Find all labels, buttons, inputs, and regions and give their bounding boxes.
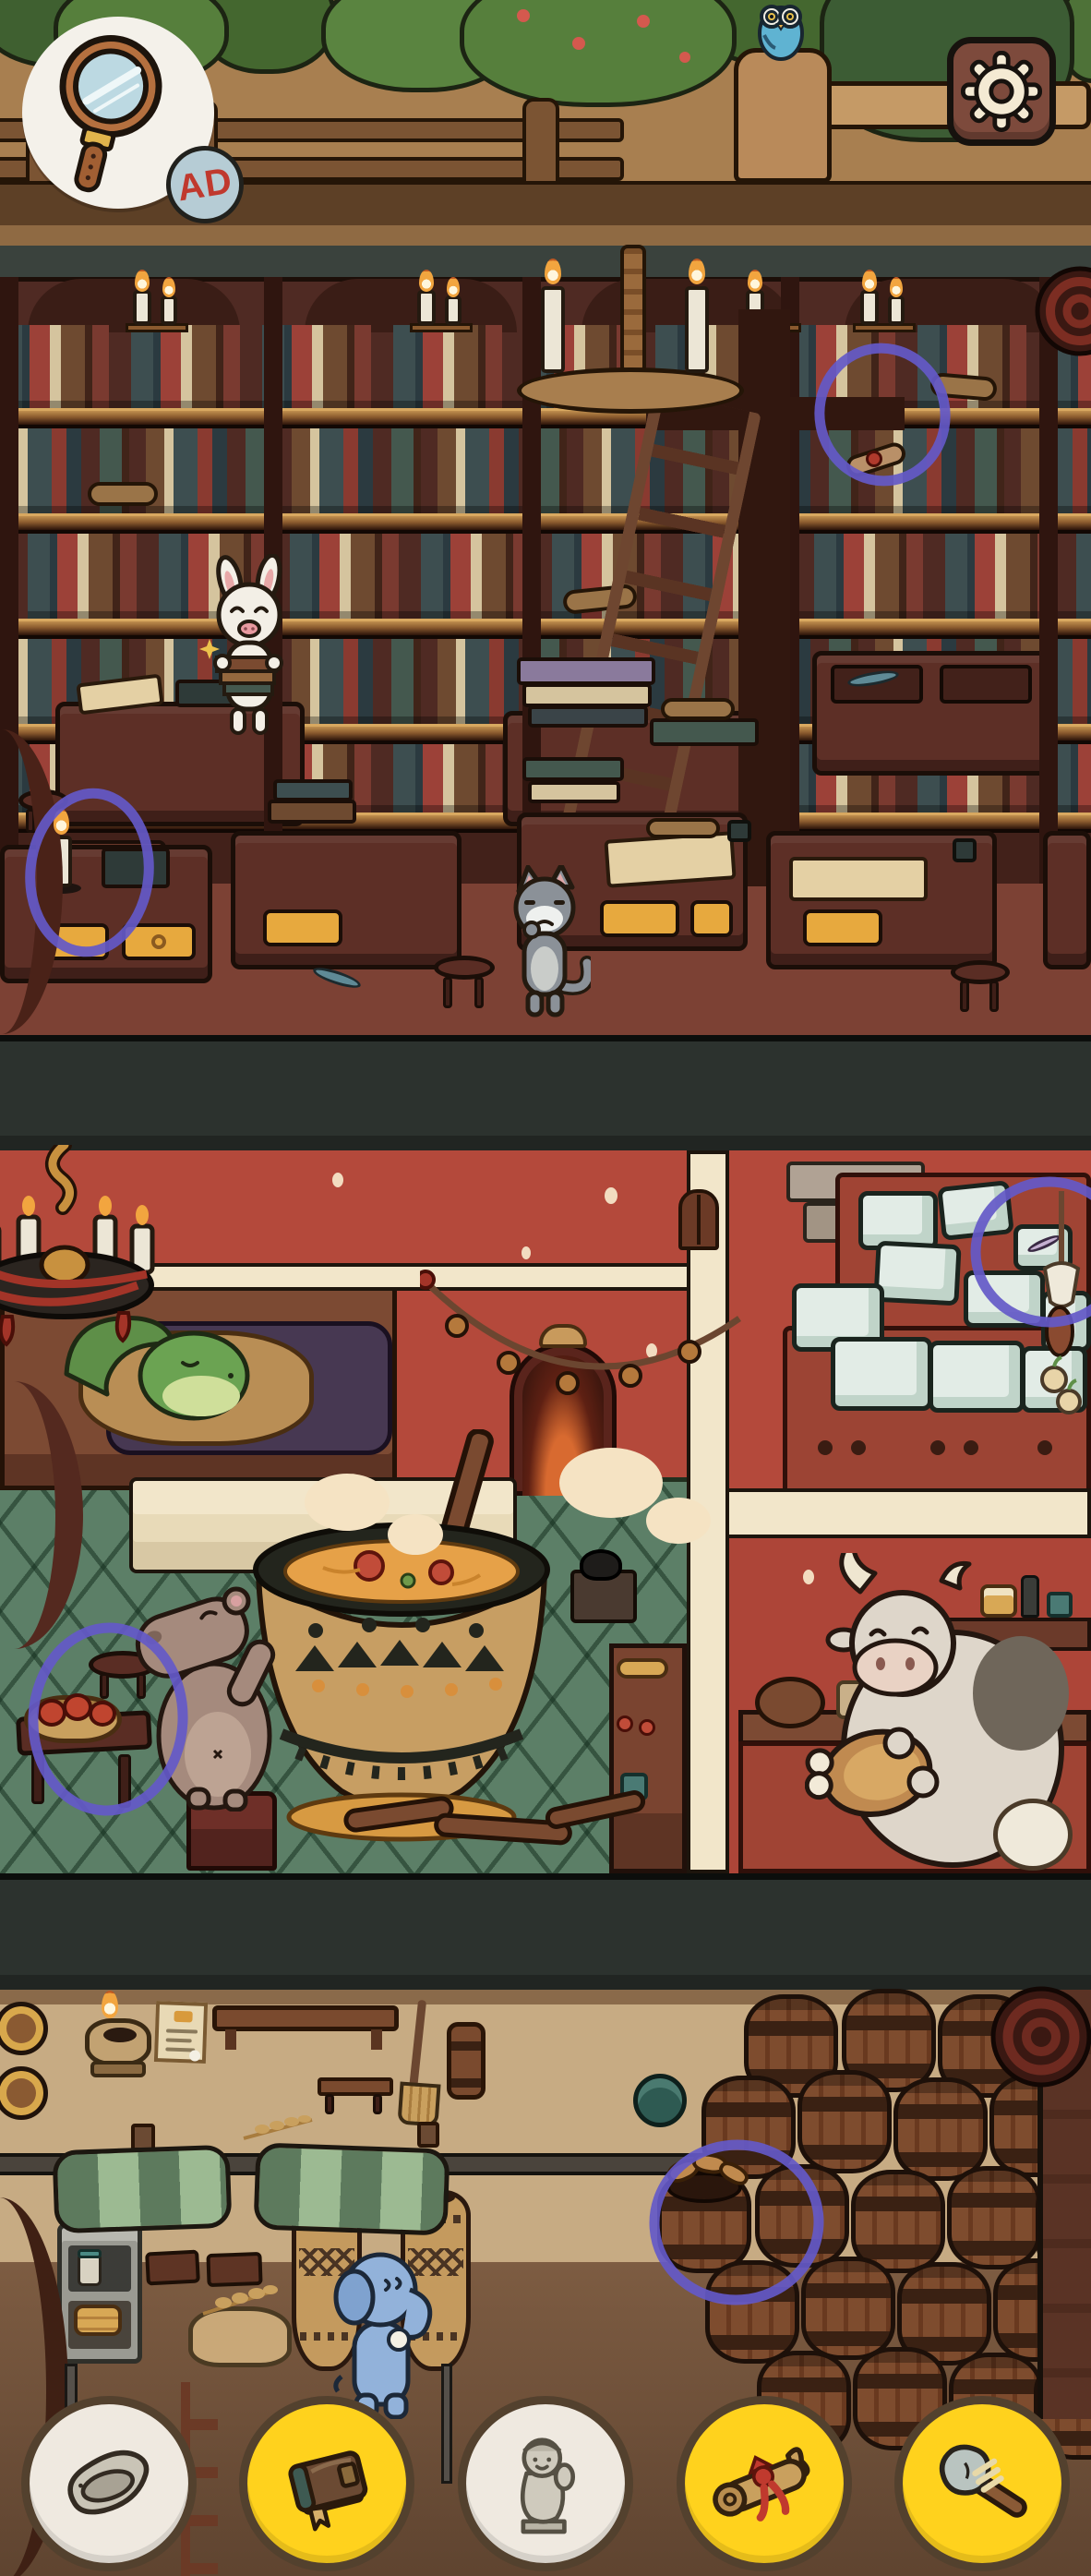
game-screen: AD (0, 0, 1091, 2576)
writing-desk (1043, 831, 1091, 969)
shelf-pillar (1039, 277, 1058, 884)
teal-pot (633, 2074, 687, 2127)
rolled-rug (973, 1985, 1091, 2094)
shelf-board (0, 408, 1091, 428)
scroll (646, 818, 720, 838)
stone-axe-icon (922, 2424, 1042, 2544)
stall-awning (253, 2142, 450, 2235)
book-stack (268, 800, 356, 824)
stool (434, 956, 495, 980)
unrolled-scroll (789, 857, 928, 901)
barrel (801, 2257, 895, 2360)
wheat-sprig (242, 2111, 316, 2144)
wall-candle (888, 295, 905, 325)
barrel (947, 2166, 1041, 2269)
bread-on-shelf (617, 1658, 668, 1679)
hint-button[interactable]: AD (22, 17, 214, 209)
shelf-bracket (225, 2029, 236, 2050)
candle-flame (162, 277, 175, 297)
hippo-cook (129, 1581, 291, 1812)
owl (755, 0, 807, 61)
candle-flame (447, 277, 460, 297)
book-stack (528, 781, 620, 803)
candle-flame (419, 270, 434, 292)
scroll-pile (88, 482, 158, 506)
oil-lamp (85, 2018, 151, 2066)
item-button-figurine[interactable] (458, 2396, 633, 2571)
stool-leg (443, 977, 452, 1008)
broom-bristles (397, 2082, 440, 2127)
berry (637, 15, 650, 28)
item-button-scroll[interactable] (677, 2396, 852, 2571)
ice-block (937, 1180, 1014, 1241)
bell-garland (420, 1265, 743, 1431)
small-barrel (447, 2022, 486, 2100)
wall-speck (332, 1173, 343, 1187)
blue-elephant (329, 2238, 443, 2419)
settings-button[interactable] (947, 37, 1056, 146)
gear-icon (957, 47, 1046, 136)
pancake-stack (74, 2305, 122, 2336)
figurine-icon (486, 2424, 605, 2544)
cream-beam-divider (725, 1488, 1091, 1538)
wall-candle (133, 290, 151, 325)
ink-pot (953, 838, 977, 862)
bin-bolt (818, 1440, 833, 1455)
floor-separator (0, 1035, 1091, 1150)
ice-block (831, 1337, 932, 1411)
lamp-flame (102, 1991, 118, 2018)
desk-drawer (803, 909, 882, 946)
wall-speck (605, 1187, 617, 1204)
lamp-base (90, 2061, 146, 2077)
jar-lid (78, 2249, 102, 2258)
stump (734, 48, 832, 183)
wall-candle (417, 290, 436, 325)
book-stack (273, 779, 353, 801)
item-button-book[interactable] (239, 2396, 414, 2571)
candle-flame (135, 270, 150, 292)
chandelier-candle (685, 286, 709, 373)
writing-desk (231, 831, 462, 969)
wall-candle (860, 290, 879, 325)
open-drawer (940, 665, 1032, 704)
shelf-board (0, 619, 1091, 639)
book (650, 718, 759, 746)
pig-librarian (198, 554, 300, 743)
barrel (755, 2164, 849, 2268)
mug (417, 2122, 439, 2148)
steam-puff (305, 1474, 390, 1531)
barrel (797, 2070, 892, 2173)
book-stack (528, 705, 648, 728)
small-bench (318, 2077, 393, 2096)
desk-drawer (600, 900, 679, 937)
table-leg (31, 1751, 44, 1804)
ribbon-knot (866, 451, 882, 467)
chandelier-rope (620, 245, 646, 374)
wax-seal (189, 2050, 200, 2061)
stool-leg (100, 1673, 109, 1699)
desk-drawer (263, 909, 342, 946)
wall-shelf (212, 2005, 399, 2031)
rolled-rug (1019, 263, 1091, 359)
bin-bolt (964, 1440, 978, 1455)
item-button-stone-slab[interactable] (21, 2396, 197, 2571)
wall-candle (161, 295, 177, 325)
candle-flame (545, 259, 561, 284)
bin-bolt (930, 1440, 945, 1455)
apple (89, 1701, 116, 1727)
item-button-stone-axe[interactable] (894, 2396, 1070, 2571)
shelf-bracket (371, 2029, 382, 2050)
stone-slab-icon (49, 2424, 169, 2544)
book-stack (522, 757, 624, 781)
wheat-on-sack (199, 2279, 282, 2319)
tomato-on-shelf (639, 1719, 655, 1736)
bookshelf-row (0, 428, 1091, 513)
barrel (705, 2260, 799, 2364)
steam-puff (559, 1448, 663, 1518)
chandelier-candle (541, 286, 565, 373)
berry (517, 9, 530, 22)
ice-block (873, 1241, 961, 1306)
kitchen-chandelier (0, 1145, 166, 1362)
wall-speck (522, 1246, 531, 1259)
stall-awning (52, 2145, 232, 2234)
apple (63, 1693, 92, 1721)
shelf-post (738, 309, 790, 886)
parchment (604, 831, 736, 888)
scroll (661, 698, 735, 720)
candle-flame (862, 270, 877, 292)
shelf-board (0, 513, 1091, 534)
book-stack (517, 657, 655, 685)
wall-candle (445, 295, 462, 325)
stool-leg (989, 981, 999, 1012)
book-stack (522, 683, 652, 707)
stool-leg (474, 977, 484, 1008)
bench-leg (325, 2094, 334, 2114)
black-kettle (580, 1549, 622, 1581)
lamp-hole (103, 2028, 137, 2042)
steam-puff (646, 1498, 711, 1544)
stool (951, 960, 1010, 984)
dark-book (102, 848, 170, 888)
scroll-icon (704, 2424, 824, 2544)
berry (572, 37, 585, 50)
book-icon (267, 2424, 387, 2544)
window-shutter-line (697, 1195, 701, 1245)
candle-flame (689, 259, 705, 284)
magnifying-glass-icon (42, 30, 181, 196)
bin-bolt (851, 1440, 866, 1455)
stool-leg (960, 981, 969, 1012)
tomato-on-shelf (617, 1715, 633, 1732)
grey-cat (497, 865, 591, 1020)
bench-leg (373, 2094, 382, 2114)
apple (37, 1699, 66, 1727)
bookshelf-row (28, 534, 1091, 619)
dirt-path-light (0, 225, 1091, 246)
desk-drawer (690, 900, 733, 937)
candle-flame (748, 270, 762, 292)
note-doodle (174, 2011, 192, 2023)
ice-block (929, 1341, 1025, 1413)
drawer-ring-handle (151, 934, 166, 949)
hanging-sausage-bundle (1032, 1191, 1091, 1450)
steam-puff (388, 1514, 443, 1555)
ink-pot (727, 820, 751, 842)
floor-separator (0, 1873, 1091, 1990)
candle-flame (54, 809, 69, 835)
chandelier-disc (517, 367, 744, 414)
pinned-note (154, 2001, 208, 2064)
candle-flame (890, 277, 903, 297)
vent-slat (145, 2250, 200, 2286)
egg-sack (993, 1799, 1073, 1871)
berry (679, 52, 690, 63)
